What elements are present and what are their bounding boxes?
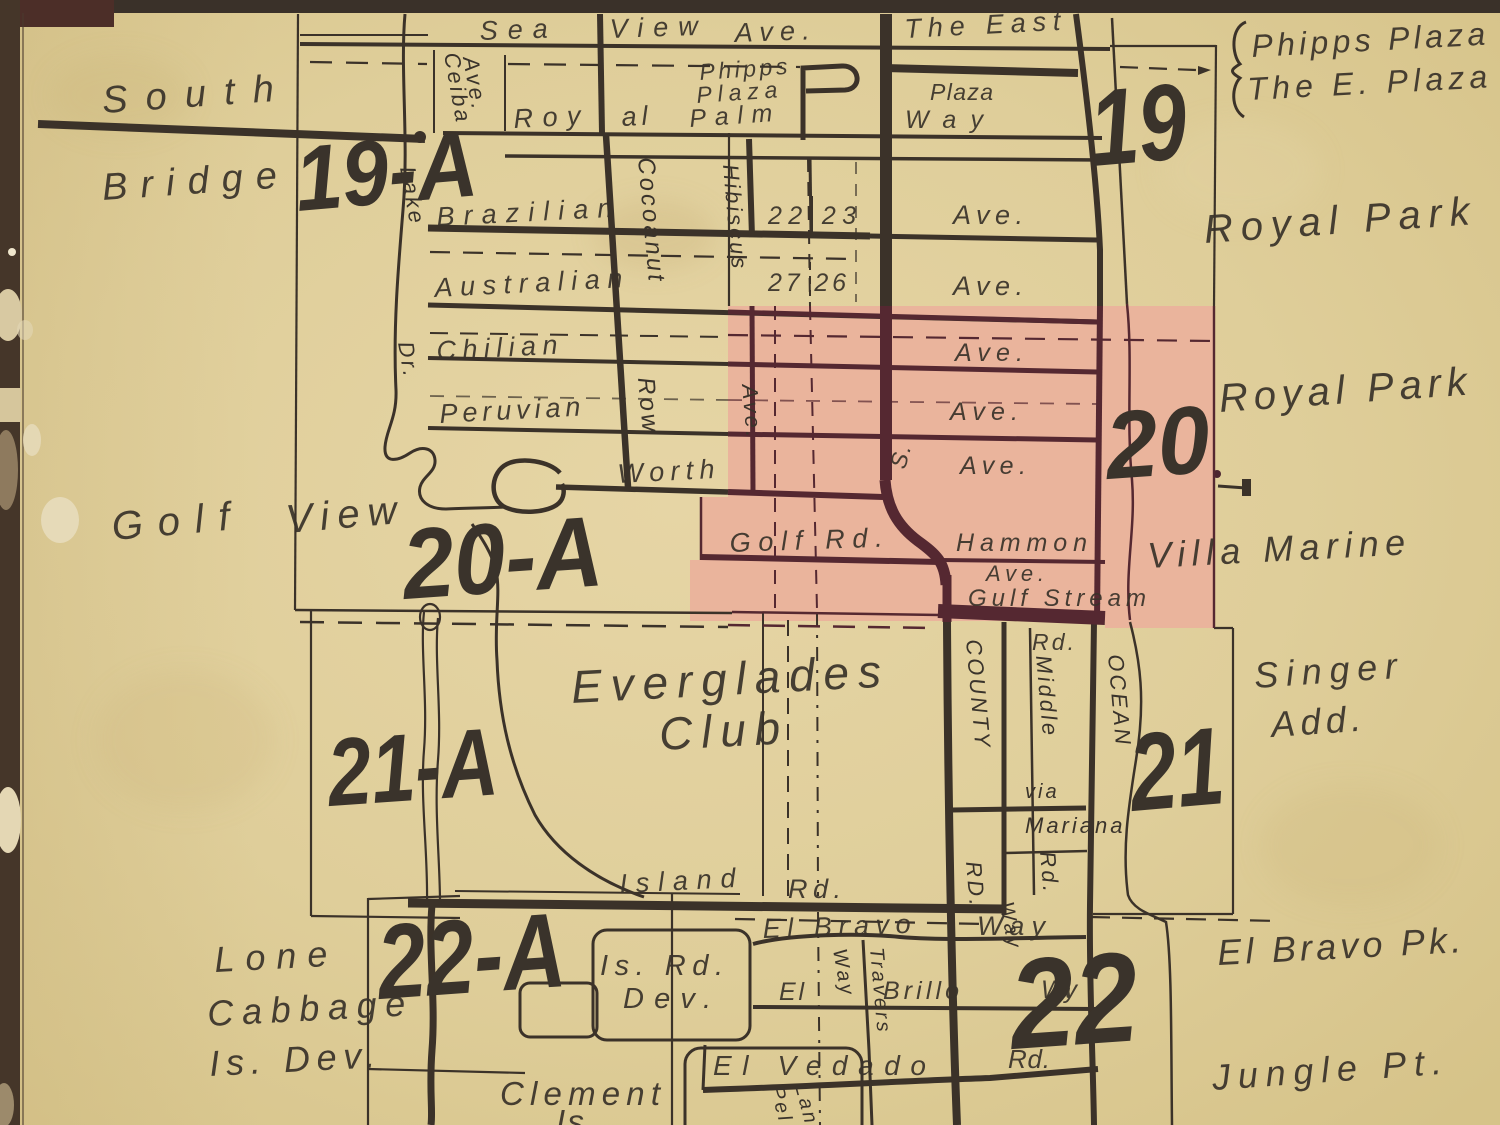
svg-text:Island: Island: [619, 863, 738, 899]
svg-text:Brillo: Brillo: [883, 977, 961, 1005]
svg-text:Plaza: Plaza: [930, 79, 995, 105]
svg-text:Rd.: Rd.: [1032, 629, 1076, 655]
svg-text:22 23: 22 23: [767, 202, 858, 230]
svg-text:Sea: Sea: [479, 14, 550, 46]
svg-text:20: 20: [1100, 386, 1213, 500]
svg-text:19-A: 19-A: [291, 113, 481, 230]
svg-text:Club: Club: [658, 702, 784, 760]
svg-text:27 26: 27 26: [767, 269, 848, 297]
svg-text:Way: Way: [905, 106, 985, 134]
svg-text:Roy: Roy: [513, 100, 583, 134]
svg-text:Rd.: Rd.: [788, 874, 843, 904]
svg-text:22-A: 22-A: [372, 891, 569, 1022]
svg-text:Is. Dev.: Is. Dev.: [208, 1034, 378, 1084]
svg-text:Ave.: Ave.: [737, 381, 767, 441]
svg-text:Is: Is: [556, 1103, 586, 1125]
svg-text:Hammon: Hammon: [956, 529, 1089, 557]
svg-text:19: 19: [1084, 60, 1191, 189]
svg-text:Mariana: Mariana: [1025, 813, 1125, 838]
svg-text:RD.: RD.: [961, 860, 990, 909]
svg-text:Gulf Stream: Gulf Stream: [968, 585, 1148, 612]
svg-text:El Vedado: El Vedado: [713, 1050, 928, 1081]
svg-text:El: El: [779, 978, 806, 1006]
svg-text:al: al: [621, 101, 651, 132]
svg-text:21-A: 21-A: [322, 708, 501, 827]
svg-text:Row: Row: [632, 376, 664, 435]
svg-text:21: 21: [1123, 704, 1229, 835]
svg-text:View: View: [609, 11, 700, 44]
svg-text:via: via: [1025, 781, 1060, 803]
svg-text:20-A: 20-A: [397, 495, 606, 621]
svg-text:Rd.: Rd.: [1035, 850, 1064, 895]
